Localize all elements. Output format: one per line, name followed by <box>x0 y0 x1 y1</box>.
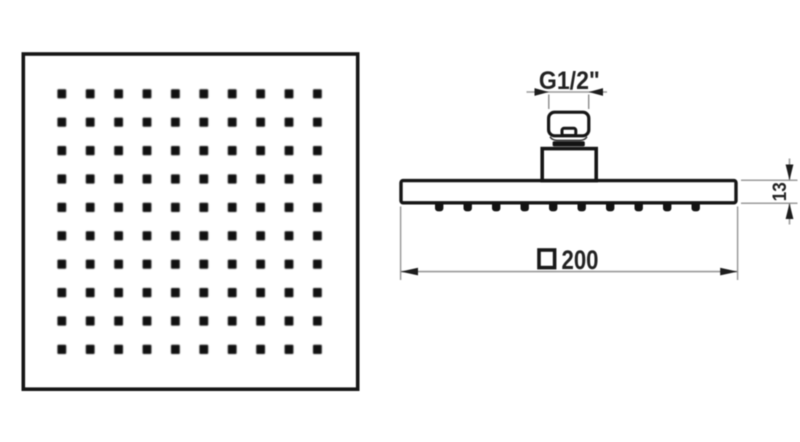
svg-text:G1/2": G1/2" <box>539 67 600 95</box>
svg-text:13: 13 <box>770 182 791 201</box>
svg-text:200: 200 <box>562 245 599 275</box>
